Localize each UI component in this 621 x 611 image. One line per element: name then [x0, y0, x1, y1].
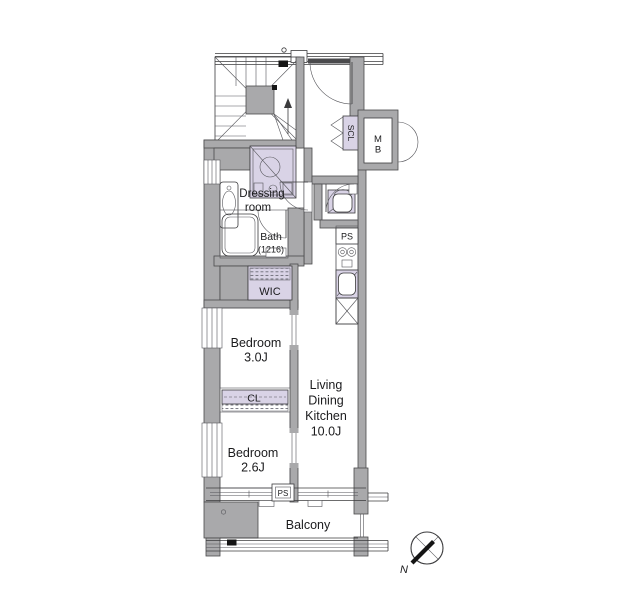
scl-label: SCL — [346, 125, 356, 142]
floor-plan-drawing: Dressing room Bath (1216) WIC SCL M B PS… — [0, 0, 621, 611]
ldk-label-line3: Kitchen — [305, 409, 347, 423]
doorbell-mark — [279, 61, 289, 68]
toilet-shelf — [349, 184, 357, 194]
ps-kitchen-label: PS — [341, 232, 353, 242]
bath-label: Bath — [260, 231, 282, 243]
balcony-column-right-lower — [354, 537, 368, 556]
mb-label-line2: B — [375, 145, 381, 156]
toilet-bowl — [333, 194, 352, 212]
compass-north-label: N — [400, 564, 408, 576]
railing-mark — [227, 540, 237, 546]
cl-label: CL — [247, 393, 261, 405]
ps-balcony-label: PS — [278, 489, 289, 498]
bedroom3-label-line1: Bedroom — [231, 336, 282, 350]
bath-size-label: (1216) — [258, 245, 284, 255]
bedroom3-door-gap — [288, 310, 300, 350]
entrance-threshold — [308, 59, 352, 64]
slider-sill-right — [308, 501, 322, 507]
wall-toilet-left — [314, 184, 322, 220]
kitchen-sink — [336, 270, 358, 298]
ldk-label-line1: Living — [310, 378, 343, 392]
bedroom2-label-line1: Bedroom — [228, 446, 279, 460]
wall-balcony-left-block — [204, 502, 258, 538]
balcony-column-right-upper — [354, 468, 368, 514]
wall-right-outer — [358, 115, 366, 500]
ldk-label-line4: 10.0J — [311, 425, 342, 439]
ldk-label-line2: Dining — [308, 394, 343, 408]
dressing-room-label-line2: room — [245, 202, 271, 214]
mb-label-line1: M — [374, 134, 382, 145]
washbasin — [220, 182, 238, 228]
floor-plan-page: Dressing room Bath (1216) WIC SCL M B PS… — [0, 0, 621, 611]
dressing-room-label-line1: Dressing — [239, 188, 284, 200]
wic-shelf — [250, 268, 290, 280]
wall-wic-bedroom-band — [204, 300, 298, 308]
cl-shelf — [222, 404, 288, 411]
dressing-door-gap — [304, 182, 312, 212]
bedroom3-label-line2: 3.0J — [244, 351, 268, 365]
wic-label: WIC — [259, 286, 280, 298]
bedroom2-label-line2: 2.6J — [241, 461, 265, 475]
bedroom2-door-gap — [288, 428, 300, 468]
balcony-label: Balcony — [286, 518, 331, 532]
wall-toilet-bottom — [320, 220, 358, 228]
stair-core — [246, 86, 274, 114]
wall-toilet-top — [312, 176, 358, 184]
wall-stair-hall — [296, 57, 304, 148]
